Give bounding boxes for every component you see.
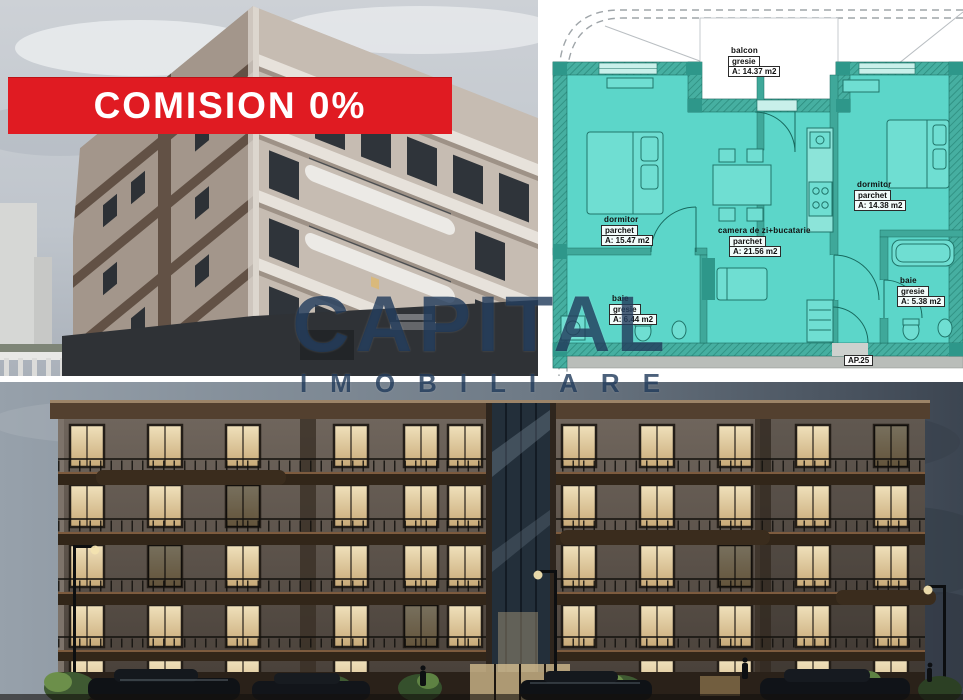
floorplan: balcon gresie A: 14.37 m2 dormitor parch… <box>545 0 963 376</box>
listing-image-collage: COMISION 0% <box>0 0 963 700</box>
room-area: A: 6.44 m2 <box>609 314 657 325</box>
glass-elevator-shaft <box>486 403 556 700</box>
day-render-graphic <box>0 0 538 376</box>
room-name: dormitor <box>857 180 906 189</box>
room-label-living: camera de zi+bucatarie parchet A: 21.56 … <box>715 226 811 257</box>
room-label-baie-left: baie gresie A: 6.44 m2 <box>609 294 657 325</box>
room-name: baie <box>612 294 657 303</box>
room-area: A: 21.56 m2 <box>729 246 781 257</box>
room-name: camera de zi+bucatarie <box>718 226 811 235</box>
room-label-dormitor-left: dormitor parchet A: 15.47 m2 <box>601 215 653 246</box>
dusk-building <box>50 400 936 700</box>
room-name: baie <box>900 276 945 285</box>
room-area: A: 14.38 m2 <box>854 200 906 211</box>
exterior-photo-day: COMISION 0% <box>0 0 538 376</box>
apartment-number-label: AP.25 <box>844 355 873 366</box>
commission-banner: COMISION 0% <box>8 77 452 134</box>
room-area: A: 14.37 m2 <box>728 66 780 77</box>
commission-banner-label: COMISION 0% <box>94 85 367 127</box>
room-area: A: 5.38 m2 <box>897 296 945 307</box>
room-label-baie-right: baie gresie A: 5.38 m2 <box>897 276 945 307</box>
room-label-dormitor-right: dormitor parchet A: 14.38 m2 <box>854 180 906 211</box>
room-area: A: 15.47 m2 <box>601 235 653 246</box>
dusk-render-graphic <box>0 382 963 700</box>
room-name: dormitor <box>604 215 653 224</box>
exterior-photo-dusk: stria <box>0 382 963 700</box>
room-name: balcon <box>731 46 780 55</box>
room-label-balcon: balcon gresie A: 14.37 m2 <box>728 46 780 77</box>
apartment-number: AP.25 <box>844 355 873 366</box>
